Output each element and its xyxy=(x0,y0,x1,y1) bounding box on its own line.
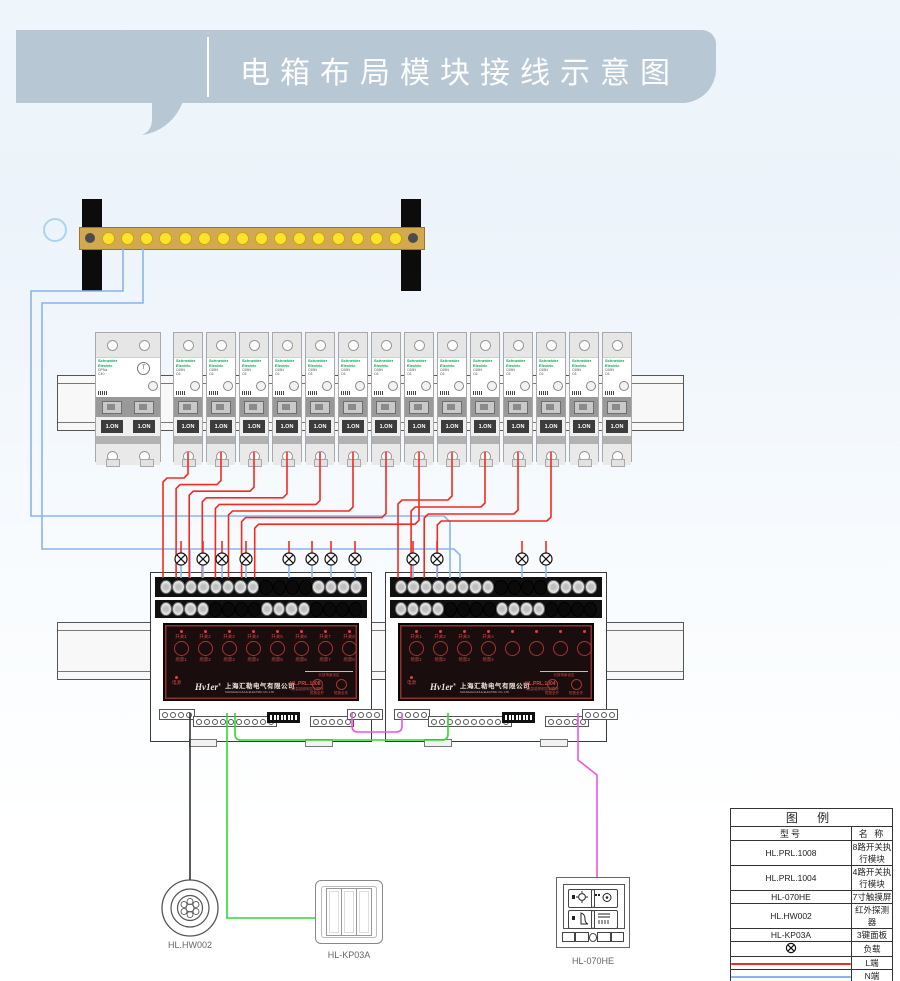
busbar-terminal-dot xyxy=(102,232,115,245)
scene-buttons: 长按场景设定 短按全开 短按全关 xyxy=(305,671,353,696)
module-terminal xyxy=(286,580,299,595)
touchscreen-hardkeys xyxy=(562,932,624,942)
module-terminal xyxy=(234,580,246,594)
legend-row: HL.PRL.10088路开关执行模块 xyxy=(731,841,893,866)
channel-button xyxy=(294,641,309,656)
module-terminal xyxy=(325,580,337,594)
module-terminal xyxy=(407,602,419,616)
brand-block: Hv1er® 上海汇勒电气有限公司SHANGHAI HULE ELECTRIC … xyxy=(195,680,295,694)
device-label-kp03a: HL-KP03A xyxy=(315,950,383,960)
load-icon xyxy=(175,553,187,565)
breaker-toggle: 1.ON xyxy=(101,420,123,433)
live-wire xyxy=(424,452,518,578)
live-wire xyxy=(242,452,386,578)
module-terminal xyxy=(273,602,285,616)
channel-button xyxy=(577,641,592,656)
module-terminal xyxy=(222,580,234,594)
keypad-keys xyxy=(326,888,372,936)
breaker-1p-7: SchneiderElectric C65NC6 1.ON xyxy=(371,332,401,462)
load-icon xyxy=(540,553,552,565)
channel-button xyxy=(174,641,189,656)
busbar-terminal-dot xyxy=(159,232,172,245)
marker-circle xyxy=(43,218,67,242)
breaker-toggle: 1.ON xyxy=(606,420,628,433)
channel-button xyxy=(409,641,424,656)
breaker-1p-11: SchneiderElectric C65NC6 1.ON xyxy=(503,332,533,462)
channel-4: 开关4 场景4 xyxy=(241,629,265,663)
live-wire xyxy=(202,452,287,578)
module-terminal xyxy=(521,580,534,595)
module-terminal xyxy=(584,602,597,617)
power-led: 电源 xyxy=(407,676,416,686)
module-terminal xyxy=(336,602,349,617)
live-wire xyxy=(411,452,485,578)
module-terminal xyxy=(285,602,297,616)
busbar-terminal-dot xyxy=(370,232,383,245)
channel-button xyxy=(505,641,520,656)
module-terminal xyxy=(172,602,184,616)
module-terminal xyxy=(197,580,209,594)
busbar-terminal-dot xyxy=(274,232,287,245)
module-terminal xyxy=(585,580,597,594)
breaker-1p-1: SchneiderElectric C65NC6 1.ON xyxy=(173,332,203,462)
load-icon xyxy=(349,553,361,565)
channel-7: 开关7 场景7 xyxy=(313,629,337,663)
hardkey xyxy=(597,932,610,942)
all-on-button: 短按全开 xyxy=(310,679,324,696)
module-terminal xyxy=(337,580,349,594)
breaker-1p-6: SchneiderElectric C65NC6 1.ON xyxy=(338,332,368,462)
busbar-terminal-dot xyxy=(236,232,249,245)
module-terminal xyxy=(407,580,419,594)
infrared-sensor-icon xyxy=(150,868,230,948)
live-wire xyxy=(255,452,419,578)
channel-button xyxy=(270,641,285,656)
channel-button xyxy=(318,641,333,656)
breaker-1p-12: SchneiderElectric C65NC6 1.ON xyxy=(536,332,566,462)
terminal-strip-top xyxy=(390,577,602,597)
breaker-toggle: 1.ON xyxy=(309,420,331,433)
breaker-toggle: 1.ON xyxy=(133,420,155,433)
breaker-1p-8: SchneiderElectric C65NC6 1.ON xyxy=(404,332,434,462)
keypad-key-2 xyxy=(342,889,357,935)
channel-2: 开关2 场景2 xyxy=(193,629,217,663)
touchscreen-panel xyxy=(556,877,630,948)
channel-button xyxy=(433,641,448,656)
page-title: 电箱布局模块接线示意图 xyxy=(215,48,705,92)
legend-row: 负载 xyxy=(731,942,893,957)
breaker-toggle: 1.ON xyxy=(540,420,562,433)
breaker-toggle: 1.ON xyxy=(243,420,265,433)
legend-title: 图 例 xyxy=(731,809,893,827)
module-terminal xyxy=(247,580,259,594)
terminal-strip-top xyxy=(155,577,367,597)
terminal-strip-second xyxy=(155,600,367,618)
module-bottom-terminals xyxy=(390,707,602,737)
module-terminal xyxy=(185,580,197,594)
legend-col-name: 名 称 xyxy=(852,827,893,841)
relay-module-hl-prl-1008: 开关1 场景1 开关2 场景2 开关3 场景3 开关4 场景4 开关5 场景5 … xyxy=(150,572,372,742)
module-terminal xyxy=(432,602,444,616)
breaker-1p-13: SchneiderElectric C65NC6 1.ON xyxy=(569,332,599,462)
device-label-070he: HL-070HE xyxy=(556,956,630,966)
scene-buttons: 长按场景设定 短按全开 短按全关 xyxy=(540,671,588,696)
channel-8 xyxy=(572,629,596,663)
fan-icon-button xyxy=(591,889,618,908)
module-terminal xyxy=(209,602,222,617)
module-terminal xyxy=(469,580,481,594)
module-terminal xyxy=(349,602,362,617)
module-terminal xyxy=(483,602,496,617)
channel-2: 开关2 场景2 xyxy=(428,629,452,663)
module-terminal xyxy=(457,602,470,617)
module-terminal xyxy=(470,602,483,617)
module-front-panel: 开关1 场景1 开关2 场景2 开关3 场景3 开关4 场景4 开关5 场景5 … xyxy=(163,623,359,701)
busbar-terminal-dot xyxy=(121,232,134,245)
module-bottom-terminals xyxy=(155,707,367,737)
dip-switch xyxy=(267,712,300,723)
module-terminal xyxy=(571,602,584,617)
legend-row: HL-070HE7寸触摸屏 xyxy=(731,891,893,904)
channel-button xyxy=(222,641,237,656)
breaker-toggle: 1.ON xyxy=(573,420,595,433)
busbar-terminal-dot xyxy=(255,232,268,245)
busbar-terminal-dot xyxy=(217,232,230,245)
breaker-1p-10: SchneiderElectric C65NC6 1.ON xyxy=(470,332,500,462)
breaker-toggle: 1.ON xyxy=(276,420,298,433)
title-banner-tail xyxy=(142,101,222,137)
load-icon xyxy=(197,553,209,565)
busbar-terminal-dot xyxy=(198,232,211,245)
busbar-end-screw xyxy=(85,233,95,243)
module-terminal xyxy=(496,602,508,616)
load-icon xyxy=(216,553,228,565)
breaker-toggle: 1.ON xyxy=(177,420,199,433)
module-terminal xyxy=(420,580,432,594)
module-terminal xyxy=(395,580,407,594)
load-icon xyxy=(306,553,318,565)
live-wire xyxy=(437,452,551,578)
module-terminal xyxy=(299,580,312,595)
module-terminal xyxy=(273,580,286,595)
module-terminal xyxy=(457,580,469,594)
module-terminal xyxy=(547,580,559,594)
module-terminal xyxy=(160,580,172,594)
module-terminal xyxy=(558,602,571,617)
live-wire xyxy=(176,452,221,578)
busbar-end-screw xyxy=(408,233,418,243)
module-terminal xyxy=(184,602,196,616)
breaker-1p-3: SchneiderElectric C65NC6 1.ON xyxy=(239,332,269,462)
main-breaker-2p: SchneiderElectric DPNaC40 T 1.ON 1.ON xyxy=(95,332,161,462)
live-wire xyxy=(229,452,354,578)
channel-button xyxy=(457,641,472,656)
channel-button xyxy=(481,641,496,656)
module-terminal xyxy=(445,580,457,594)
module-terminal xyxy=(520,602,532,616)
load-icon xyxy=(431,553,443,565)
channel-7 xyxy=(548,629,572,663)
legend-row: HL-KP03A3键面板 xyxy=(731,929,893,942)
module-terminal xyxy=(494,580,507,595)
channel-3: 开关3 场景3 xyxy=(217,629,241,663)
module-terminal xyxy=(248,602,261,617)
load-icon xyxy=(516,553,528,565)
breaker-toggle: 1.ON xyxy=(507,420,529,433)
hardkey xyxy=(575,932,588,942)
brand-block: Hv1er® 上海汇勒电气有限公司SHANGHAI HULE ELECTRIC … xyxy=(430,680,530,694)
load-icon xyxy=(325,553,337,565)
channel-5 xyxy=(500,629,524,663)
busbar-terminal-dot xyxy=(351,232,364,245)
module-terminal xyxy=(560,580,572,594)
breaker-1p-9: SchneiderElectric C65NC6 1.ON xyxy=(437,332,467,462)
channel-1: 开关1 场景1 xyxy=(169,629,193,663)
module-terminal xyxy=(235,602,248,617)
device-label-hw002: HL.HW002 xyxy=(150,940,230,950)
breaker-toggle: 1.ON xyxy=(375,420,397,433)
channel-4: 开关4 场景4 xyxy=(476,629,500,663)
ac-icon-button xyxy=(591,910,618,929)
legend-row: L端 xyxy=(731,957,893,970)
module-terminal xyxy=(261,602,273,616)
module-terminal xyxy=(508,602,520,616)
title-divider xyxy=(207,37,209,97)
module-terminal xyxy=(533,602,545,616)
live-wire xyxy=(398,452,452,578)
keypad-panel xyxy=(315,880,383,944)
channel-6 xyxy=(524,629,548,663)
module-terminal xyxy=(432,580,444,594)
breaker-toggle: 1.ON xyxy=(474,420,496,433)
module-terminal xyxy=(310,602,323,617)
neutral-line-swatch xyxy=(731,976,851,978)
module-terminal xyxy=(350,580,362,594)
module-terminal xyxy=(419,602,431,616)
legend-row: HL.HW002红外探测器 xyxy=(731,904,893,929)
module-front-panel: 开关1 场景1 开关2 场景2 开关3 场景3 开关4 场景4 电源 xyxy=(398,623,594,701)
breaker-toggle: 1.ON xyxy=(342,420,364,433)
live-wire xyxy=(189,452,254,578)
module-terminal xyxy=(482,580,494,594)
module-terminal xyxy=(545,602,558,617)
module-terminal xyxy=(259,580,272,595)
busbar-terminal-dot xyxy=(179,232,192,245)
module-terminal xyxy=(572,580,584,594)
legend-row: HL.PRL.10044路开关执行模块 xyxy=(731,866,893,891)
busbar-terminal-dot xyxy=(332,232,345,245)
channel-button xyxy=(342,641,357,656)
live-line-swatch xyxy=(731,963,851,965)
load-icon xyxy=(407,553,419,565)
neutral-busbar xyxy=(79,227,425,250)
legend-table: 图 例 型号 名 称HL.PRL.10088路开关执行模块HL.PRL.1004… xyxy=(730,808,893,981)
hardkey xyxy=(562,932,575,942)
bus-wire-keypad xyxy=(227,713,315,918)
breaker-1p-5: SchneiderElectric C65NC6 1.ON xyxy=(305,332,335,462)
busbar-terminal-dot xyxy=(389,232,402,245)
dip-switch xyxy=(502,712,535,723)
module-terminal xyxy=(160,602,172,616)
channel-3: 开关3 场景3 xyxy=(452,629,476,663)
load-icon xyxy=(785,942,797,954)
keypad-key-3 xyxy=(357,889,371,935)
module-terminal xyxy=(222,602,235,617)
power-led: 电源 xyxy=(172,676,181,686)
legend-row: N端 xyxy=(731,970,893,981)
channel-5: 开关5 场景5 xyxy=(265,629,289,663)
load-icon xyxy=(240,553,252,565)
relay-module-hl-prl-1004: 开关1 场景1 开关2 场景2 开关3 场景3 开关4 场景4 电源 xyxy=(385,572,607,742)
wiring-diagram-canvas: 电箱布局模块接线示意图 SchneiderElectric DPNaC40 T … xyxy=(0,0,900,981)
busbar-terminal-dot xyxy=(140,232,153,245)
live-wire xyxy=(215,452,320,578)
all-off-button: 短按全关 xyxy=(569,679,583,696)
home-key xyxy=(589,933,597,942)
channel-button xyxy=(246,641,261,656)
busbar-terminal-dot xyxy=(293,232,306,245)
all-off-button: 短按全关 xyxy=(334,679,348,696)
module-terminal xyxy=(508,580,521,595)
channel-8: 开关8 场景8 xyxy=(337,629,361,663)
module-terminal xyxy=(172,580,184,594)
module-terminal xyxy=(298,602,310,616)
breaker-toggle: 1.ON xyxy=(210,420,232,433)
busbar-terminal-dot xyxy=(312,232,325,245)
hardkey xyxy=(611,932,624,942)
channel-1: 开关1 场景1 xyxy=(404,629,428,663)
legend-col-model: 型号 xyxy=(731,827,852,841)
module-terminal xyxy=(323,602,336,617)
breaker-toggle: 1.ON xyxy=(441,420,463,433)
keypad-key-1 xyxy=(327,889,342,935)
all-on-button: 短按全开 xyxy=(545,679,559,696)
live-wire xyxy=(163,452,188,578)
breaker-1p-4: SchneiderElectric C65NC6 1.ON xyxy=(272,332,302,462)
channel-button xyxy=(529,641,544,656)
module-terminal xyxy=(312,580,324,594)
module-terminal xyxy=(210,580,222,594)
breaker-1p-2: SchneiderElectric C65NC6 1.ON xyxy=(206,332,236,462)
module-terminal xyxy=(197,602,209,616)
load-icon xyxy=(283,553,295,565)
module-terminal xyxy=(444,602,457,617)
module-terminal xyxy=(395,602,407,616)
terminal-strip-second xyxy=(390,600,602,618)
breaker-1p-14: SchneiderElectric C65NC6 1.ON xyxy=(602,332,632,462)
channel-6: 开关6 场景6 xyxy=(289,629,313,663)
module-terminal xyxy=(534,580,547,595)
channel-button xyxy=(198,641,213,656)
breaker-toggle: 1.ON xyxy=(408,420,430,433)
channel-button xyxy=(553,641,568,656)
